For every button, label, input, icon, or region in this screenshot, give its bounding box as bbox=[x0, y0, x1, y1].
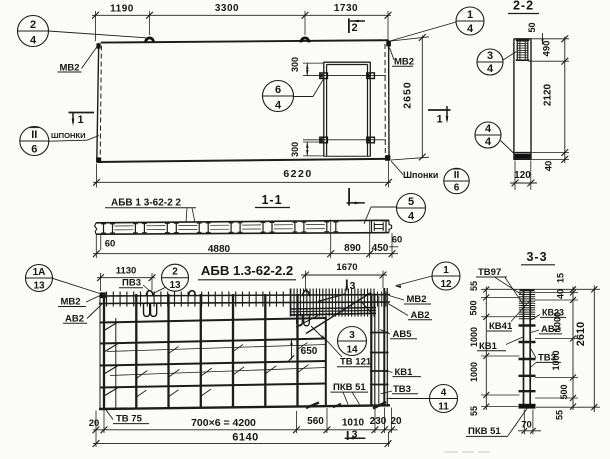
svg-text:300: 300 bbox=[290, 57, 300, 72]
svg-text:4: 4 bbox=[275, 99, 282, 111]
svg-text:КВ41: КВ41 bbox=[489, 321, 513, 332]
svg-text:1670: 1670 bbox=[336, 262, 357, 273]
svg-text:40: 40 bbox=[556, 289, 566, 299]
svg-text:12: 12 bbox=[440, 279, 452, 290]
svg-text:1: 1 bbox=[77, 114, 83, 126]
svg-text:6140: 6140 bbox=[232, 432, 258, 444]
svg-text:560: 560 bbox=[307, 416, 324, 427]
svg-text:6: 6 bbox=[454, 183, 460, 194]
svg-text:1190: 1190 bbox=[110, 4, 134, 15]
svg-text:II: II bbox=[31, 129, 37, 141]
svg-text:6220: 6220 bbox=[283, 168, 312, 180]
svg-text:700×6 = 4200: 700×6 = 4200 bbox=[191, 417, 256, 429]
svg-text:1000: 1000 bbox=[469, 327, 479, 347]
svg-text:6: 6 bbox=[275, 84, 281, 96]
svg-text:4: 4 bbox=[485, 123, 492, 135]
svg-text:1: 1 bbox=[436, 114, 442, 126]
svg-text:2: 2 bbox=[30, 19, 36, 31]
svg-text:3: 3 bbox=[349, 330, 355, 341]
svg-text:4880: 4880 bbox=[208, 244, 231, 255]
svg-text:МВ2: МВ2 bbox=[407, 294, 427, 305]
svg-text:300: 300 bbox=[290, 142, 300, 157]
svg-text:1000: 1000 bbox=[469, 362, 479, 382]
svg-text:13: 13 bbox=[169, 280, 181, 291]
svg-text:КВ23: КВ23 bbox=[542, 308, 564, 318]
svg-text:890: 890 bbox=[344, 243, 361, 254]
svg-text:2: 2 bbox=[172, 267, 178, 278]
svg-text:1130: 1130 bbox=[116, 266, 137, 277]
svg-text:230: 230 bbox=[370, 416, 387, 427]
svg-text:14: 14 bbox=[346, 344, 358, 355]
svg-text:ПВ3: ПВ3 bbox=[122, 278, 141, 289]
svg-text:1730: 1730 bbox=[334, 3, 358, 14]
svg-text:ТВ97: ТВ97 bbox=[478, 267, 501, 278]
svg-text:2120: 2120 bbox=[543, 83, 554, 106]
svg-text:20: 20 bbox=[390, 416, 402, 427]
svg-text:2: 2 bbox=[351, 22, 357, 34]
svg-text:120: 120 bbox=[514, 170, 531, 181]
svg-text:3: 3 bbox=[487, 50, 493, 62]
svg-text:4: 4 bbox=[30, 34, 37, 46]
svg-text:ШПОНКИ: ШПОНКИ bbox=[51, 131, 86, 140]
svg-text:3-3: 3-3 bbox=[526, 250, 547, 264]
svg-text:ТВ 121: ТВ 121 bbox=[340, 357, 372, 368]
svg-text:АБВ 1 3-62-2 2: АБВ 1 3-62-2 2 bbox=[111, 198, 181, 209]
svg-text:650: 650 bbox=[301, 346, 318, 357]
svg-text:500: 500 bbox=[559, 384, 569, 399]
svg-text:11: 11 bbox=[438, 401, 449, 412]
svg-text:4: 4 bbox=[485, 136, 492, 148]
svg-text:АВ2: АВ2 bbox=[541, 324, 560, 335]
svg-text:1-1: 1-1 bbox=[261, 193, 282, 207]
svg-text:15: 15 bbox=[556, 273, 566, 283]
svg-text:5: 5 bbox=[408, 196, 414, 208]
svg-text:1010: 1010 bbox=[342, 418, 365, 429]
svg-text:2-2: 2-2 bbox=[513, 0, 534, 13]
svg-text:40: 40 bbox=[544, 161, 555, 172]
svg-text:МВ2: МВ2 bbox=[61, 297, 81, 308]
svg-text:4: 4 bbox=[487, 63, 494, 75]
svg-text:АБВ 1.3-62-2.2: АБВ 1.3-62-2.2 bbox=[201, 263, 293, 278]
svg-text:55: 55 bbox=[469, 281, 479, 291]
svg-text:55: 55 bbox=[555, 410, 565, 420]
svg-text:60: 60 bbox=[392, 235, 403, 246]
svg-text:ТВ 75: ТВ 75 bbox=[116, 414, 143, 425]
svg-text:60: 60 bbox=[105, 239, 116, 250]
svg-text:55: 55 bbox=[469, 406, 479, 416]
svg-text:ПКВ 51: ПКВ 51 bbox=[468, 426, 501, 437]
svg-text:20: 20 bbox=[89, 418, 100, 429]
svg-text:1: 1 bbox=[443, 265, 449, 276]
svg-text:500: 500 bbox=[469, 300, 479, 315]
svg-text:4: 4 bbox=[467, 23, 474, 35]
svg-text:3300: 3300 bbox=[215, 3, 239, 14]
svg-text:4: 4 bbox=[408, 210, 415, 222]
svg-text:3: 3 bbox=[352, 429, 358, 441]
svg-text:ТВ3: ТВ3 bbox=[538, 353, 556, 364]
svg-text:2650: 2650 bbox=[402, 81, 414, 108]
svg-text:50: 50 bbox=[527, 22, 537, 32]
svg-text:70: 70 bbox=[521, 420, 532, 431]
svg-text:2610: 2610 bbox=[575, 322, 587, 346]
svg-text:Шпонки: Шпонки bbox=[403, 170, 438, 180]
svg-text:4: 4 bbox=[441, 387, 447, 398]
svg-text:1: 1 bbox=[467, 9, 473, 21]
svg-text:II: II bbox=[454, 170, 460, 181]
svg-text:450: 450 bbox=[372, 243, 389, 254]
svg-text:ПКВ 51: ПКВ 51 bbox=[333, 382, 366, 393]
svg-text:1А: 1А bbox=[33, 267, 46, 278]
svg-text:490: 490 bbox=[542, 41, 553, 57]
svg-text:6: 6 bbox=[31, 143, 37, 155]
svg-text:13: 13 bbox=[33, 280, 45, 291]
